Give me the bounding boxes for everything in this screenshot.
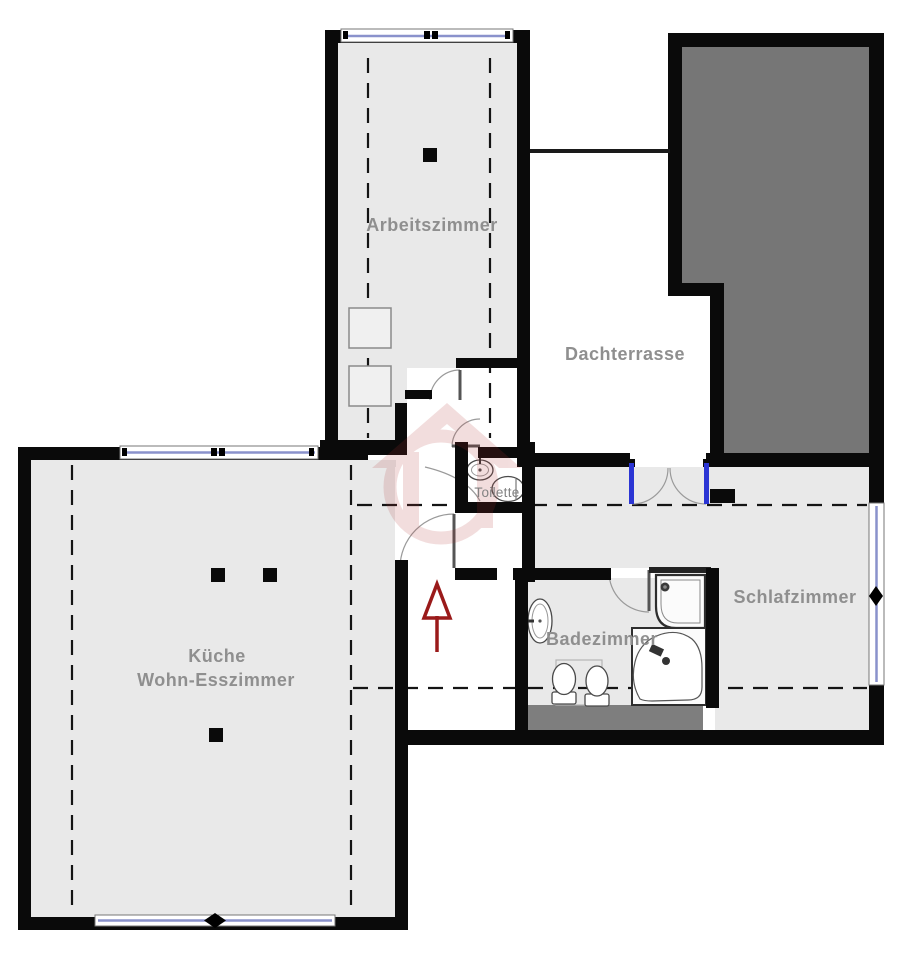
window-wohnzimmer-bottom (95, 913, 335, 928)
label-kueche: Küche (188, 646, 246, 666)
floor-plan-page: Arbeitszimmer Dachterrasse Toilette Küch… (0, 0, 900, 960)
window-schlafzimmer-right (869, 503, 884, 685)
shower-icon (656, 575, 705, 628)
floor-plan-drawing: Arbeitszimmer Dachterrasse Toilette Küch… (0, 0, 900, 960)
floor-corridor (535, 467, 869, 568)
label-toilette: Toilette (474, 485, 519, 500)
label-schlafzimmer: Schlafzimmer (733, 587, 856, 607)
floor-areas (31, 43, 869, 917)
label-dachterrasse: Dachterrasse (565, 344, 685, 364)
label-arbeitszimmer: Arbeitszimmer (366, 215, 498, 235)
terrace-door-opening (630, 453, 706, 467)
bidet-icon (585, 666, 609, 706)
window-arbeitszimmer-top (341, 29, 513, 42)
window-wohnzimmer-top (120, 446, 318, 459)
terrace-edge-line (530, 149, 670, 153)
label-wohn-esszimmer: Wohn-Esszimmer (137, 670, 295, 690)
toilet-icon (552, 664, 576, 705)
floor-vestibule (408, 573, 515, 733)
label-badezimmer: Badezimmer (546, 629, 658, 649)
shaft-block (523, 705, 703, 731)
